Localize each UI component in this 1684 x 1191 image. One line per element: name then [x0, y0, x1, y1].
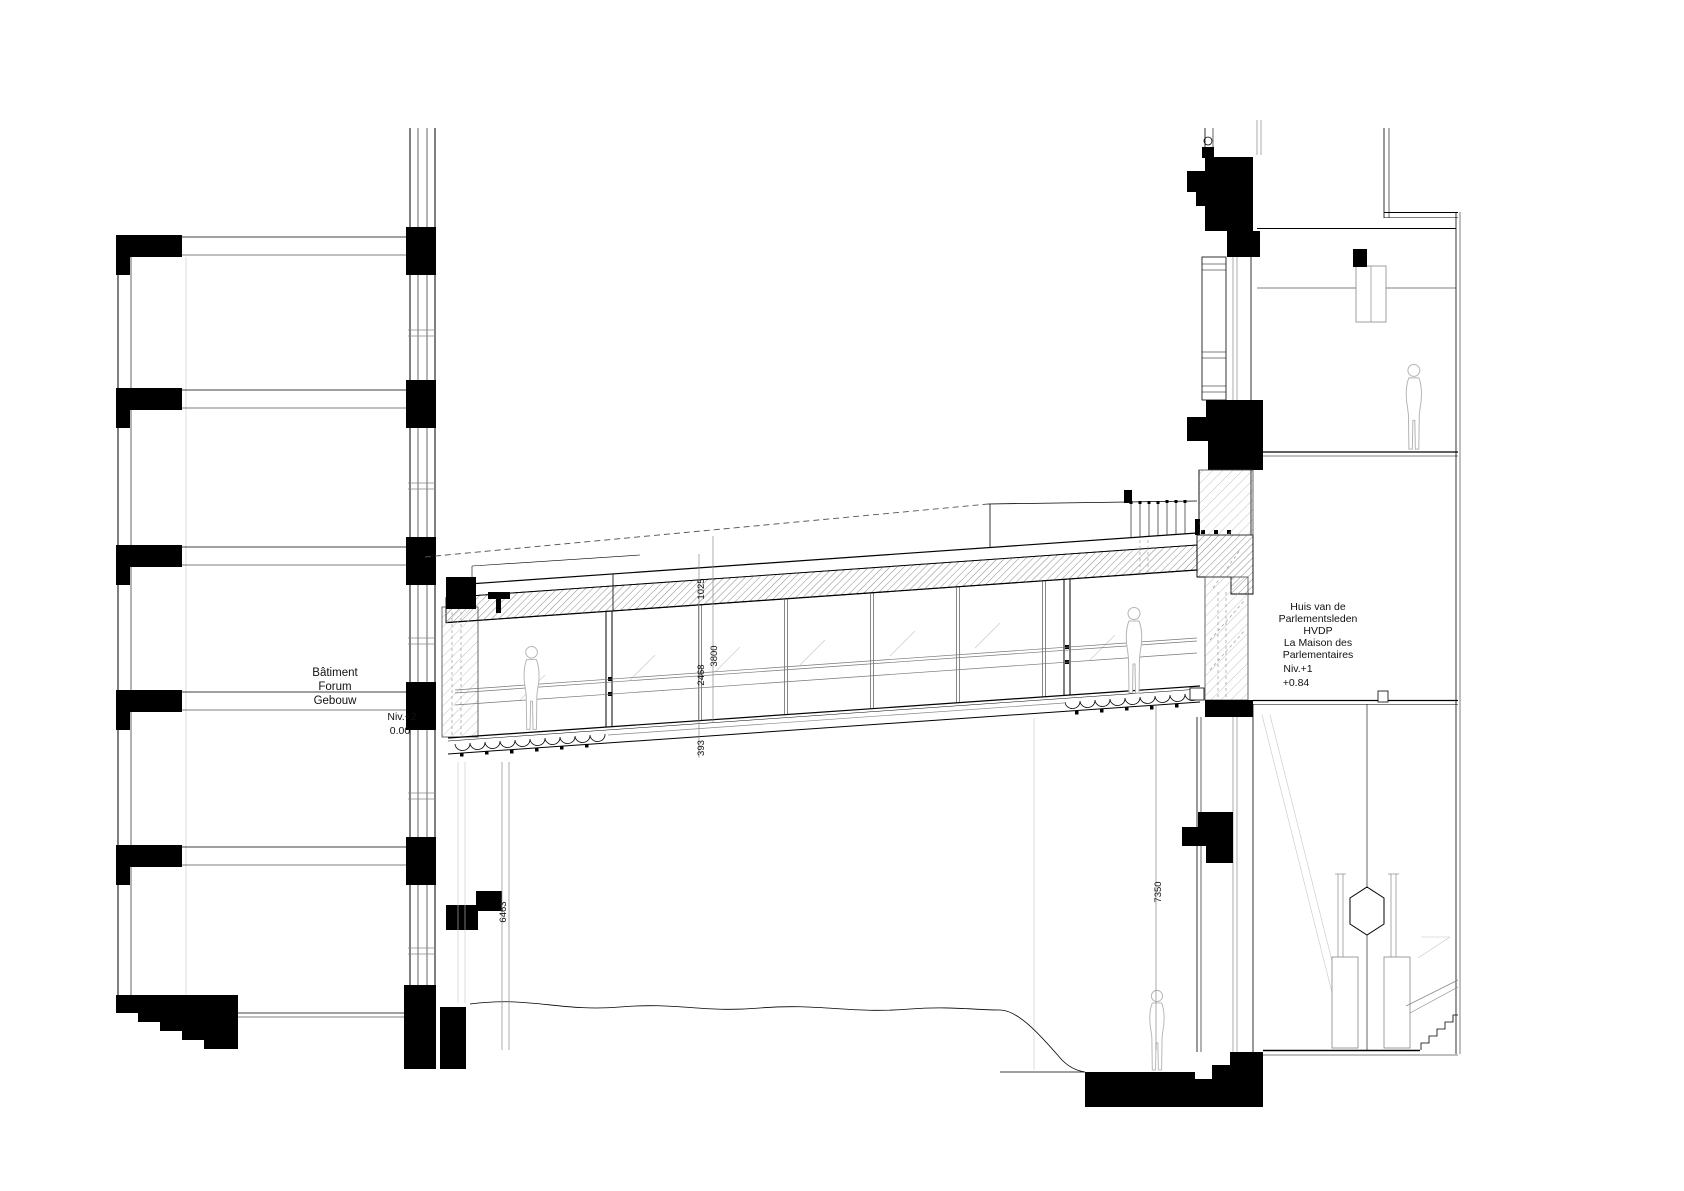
floor-edge-post [1378, 691, 1388, 702]
right-building-label-line1: Huis van de [1290, 601, 1346, 613]
facade-footing [404, 985, 466, 1069]
bridge-handrail [455, 638, 1197, 705]
floor-slab [116, 537, 436, 585]
bridge-support-console [446, 891, 502, 930]
facade-wall-panel [1199, 470, 1253, 535]
excavation-line [470, 1002, 1085, 1072]
right-building-label-line5: Parlementaires [1283, 649, 1354, 661]
section-drawing-canvas: 1025 3800 2468 393 6463 7350 Bâtiment Fo… [0, 0, 1684, 1191]
left-building-base-stairs [116, 995, 406, 1049]
person-figure-bridge-right [1126, 608, 1141, 694]
person-figure-ground [1150, 990, 1164, 1070]
left-level-elevation: 0.00 [390, 725, 411, 737]
right-building-label-line2: Parlementsleden [1279, 613, 1358, 625]
dim-right-height: 7350 [1153, 881, 1164, 902]
dim-left-height: 6463 [498, 901, 509, 922]
bridge-floor [448, 686, 1204, 757]
bridge-roof [446, 504, 1197, 623]
left-building-label-line1: Bâtiment [312, 667, 358, 679]
person-figure-bridge-left [524, 646, 539, 729]
left-building-label-line2: Forum [318, 681, 351, 693]
facade-column [1202, 257, 1251, 400]
floor-slab [116, 380, 436, 428]
glass-reflection-marks [520, 623, 1115, 700]
right-level-elevation: +0.84 [1283, 677, 1310, 689]
floor-threshold [1190, 688, 1204, 700]
left-building-section [116, 128, 502, 1069]
dim-bridge-roof: 1025 [696, 578, 707, 599]
lower-hall [1262, 704, 1458, 1050]
lower-corbel [1182, 812, 1233, 863]
floor-slab [116, 837, 436, 885]
floor-slab [116, 227, 436, 275]
left-level-label: Niv.+2 [387, 711, 416, 723]
right-wall-below-bridge [1182, 704, 1253, 1052]
right-level-label: Niv.+1 [1283, 663, 1312, 675]
bridge-left-wall [442, 577, 478, 737]
footbridge-section [425, 490, 1253, 757]
ground-slab [1085, 1072, 1195, 1107]
architectural-section-drawing: 1025 3800 2468 393 6463 7350 Bâtiment Fo… [0, 0, 1684, 1191]
right-building-label-line3: HVDP [1303, 625, 1332, 637]
roof-cornice [1187, 157, 1260, 257]
canopy-dashed-line [425, 504, 988, 557]
dim-bridge-glass: 2468 [696, 664, 707, 685]
ground-excavation [458, 718, 1458, 1107]
dim-bridge-total: 3800 [709, 645, 720, 666]
hall-stairs [1406, 937, 1458, 1050]
right-building-label-line4: La Maison des [1284, 637, 1352, 649]
upper-corbel [1187, 400, 1263, 470]
dim-bridge-floor: 393 [696, 740, 707, 756]
right-wall-footing [1193, 1052, 1263, 1107]
person-figure-upper-floor [1406, 364, 1421, 449]
left-building-label-line3: Gebouw [314, 695, 358, 707]
